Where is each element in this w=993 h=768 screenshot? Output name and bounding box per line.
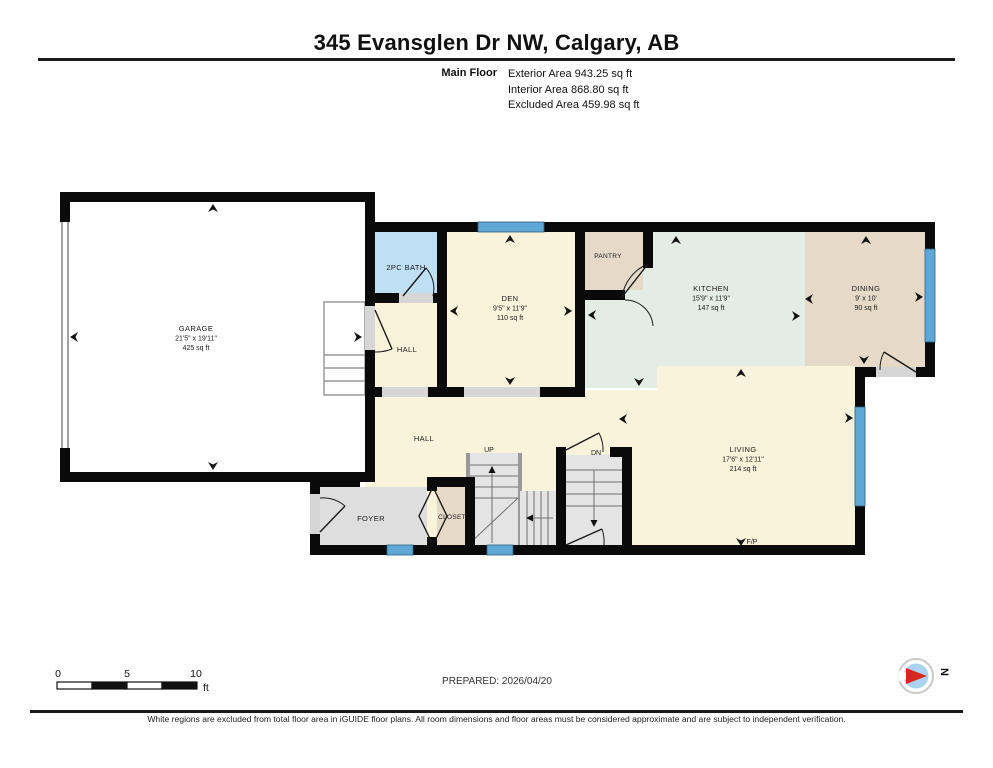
window <box>487 545 513 555</box>
hall-upper-label: HALL <box>397 345 417 354</box>
floorplan-drawing: GARAGE 21'5" x 19'11" 425 sq ft 2PC BATH… <box>0 0 993 768</box>
dining-dims: 9' x 10' <box>855 296 877 303</box>
kitchen-label: KITCHEN <box>693 284 729 293</box>
scale-bar: 0 5 10 ft <box>55 668 209 694</box>
hall-lower-label: HALL <box>414 434 434 443</box>
arrow-up-icon <box>208 204 218 212</box>
garage-area: 425 sq ft <box>183 345 210 352</box>
arrow-down-icon <box>208 462 218 470</box>
scale-tick-5: 5 <box>124 668 130 680</box>
compass-north-label: N <box>938 668 950 676</box>
scale-tick-0: 0 <box>55 668 61 680</box>
pantry-label: PANTRY <box>594 253 622 260</box>
footer-disclaimer: White regions are excluded from total fl… <box>0 714 993 724</box>
garage-stairs <box>324 302 365 395</box>
room-kitchen-lower <box>585 368 657 388</box>
bath-label: 2PC BATH <box>386 263 425 272</box>
compass-icon: N <box>898 659 950 693</box>
garage-label: GARAGE <box>179 324 214 333</box>
kitchen-dims: 15'9" x 11'9" <box>692 296 730 303</box>
stairs-up <box>470 453 518 545</box>
window <box>855 407 865 506</box>
window <box>387 545 413 555</box>
scale-unit: ft <box>203 682 209 694</box>
window <box>478 222 544 232</box>
den-label: DEN <box>501 294 518 303</box>
scale-tick-10: 10 <box>190 668 202 680</box>
den-area: 110 sq ft <box>497 315 523 322</box>
garage-door <box>62 222 68 448</box>
dining-label: DINING <box>852 284 881 293</box>
foyer-label: FOYER <box>357 514 385 523</box>
window <box>925 249 935 342</box>
living-dims: 17'6" x 12'11" <box>722 457 764 464</box>
kitchen-area: 147 sq ft <box>698 305 725 312</box>
living-label: LIVING <box>730 445 757 454</box>
floorplan-page: 345 Evansglen Dr NW, Calgary, AB Main Fl… <box>0 0 993 768</box>
garage-dims: 21'5" x 19'11" <box>175 336 217 343</box>
fireplace-label: F/P <box>747 539 758 546</box>
living-area: 214 sq ft <box>730 466 757 473</box>
closet-label: CLOSET <box>438 514 466 521</box>
footer-divider <box>30 710 963 713</box>
prepared-date: PREPARED: 2026/04/20 <box>347 676 647 687</box>
dining-area: 90 sq ft <box>855 305 878 312</box>
stairs-dn-label: DN <box>591 450 601 457</box>
arrow-left-icon <box>70 332 78 342</box>
stairs-up-label: UP <box>484 447 494 454</box>
den-dims: 9'5" x 11'9" <box>493 306 527 313</box>
